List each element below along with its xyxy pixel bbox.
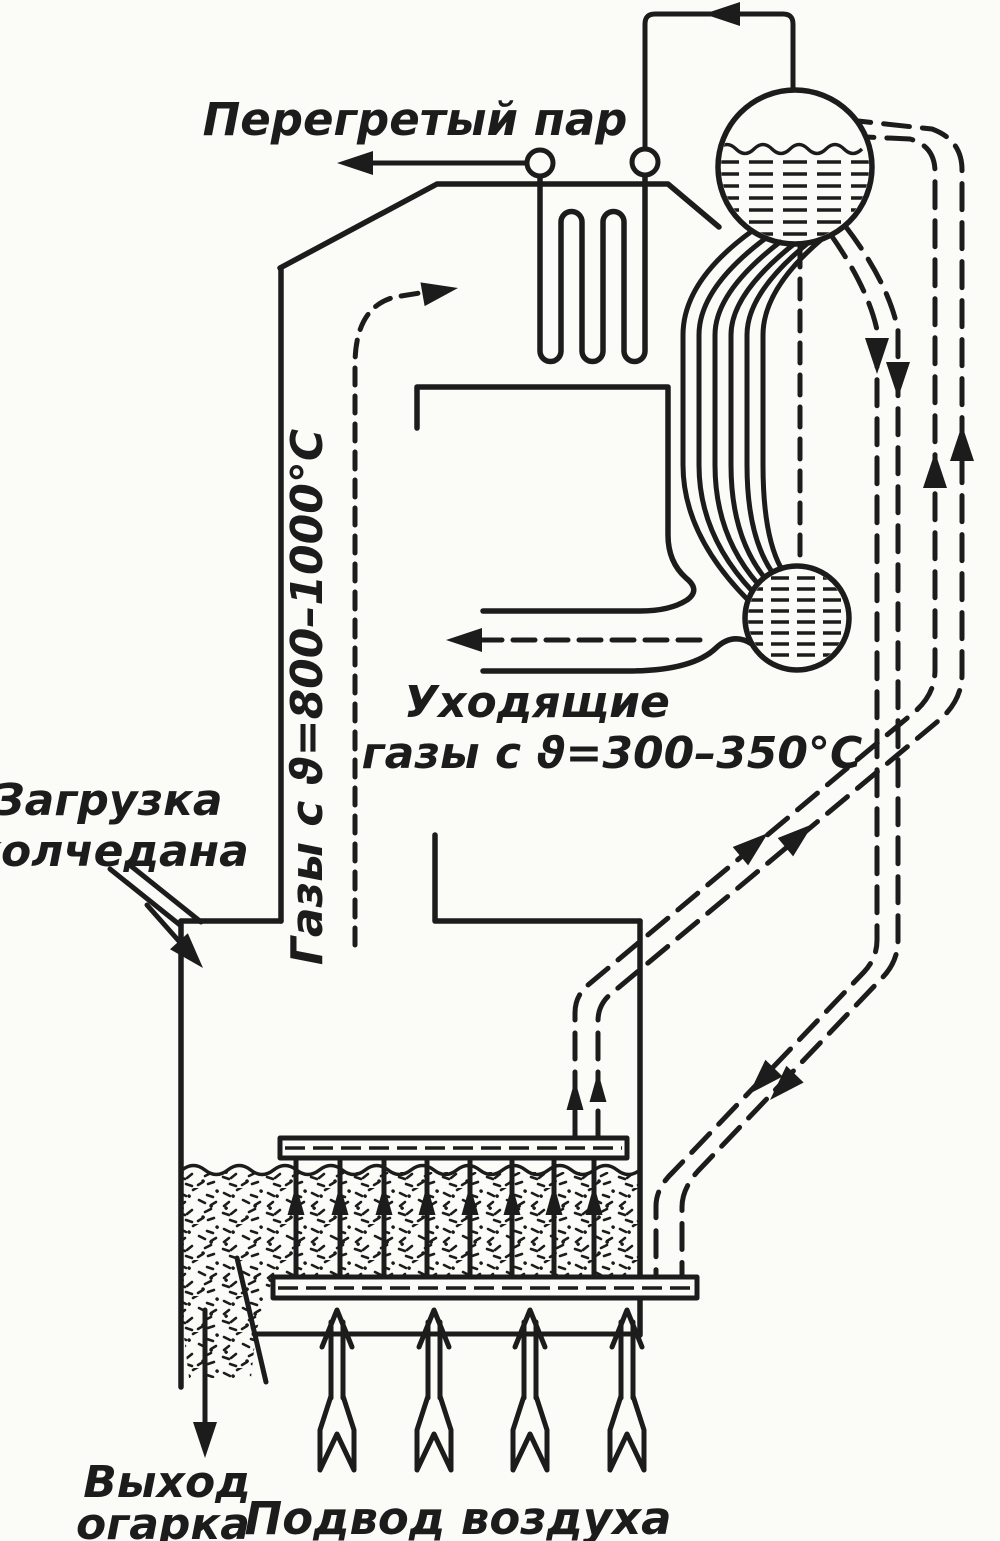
label-exhaust-gases-line1: Уходящие <box>404 677 670 728</box>
labels: Перегретый пар Газы с ϑ=800–1000°C Уходя… <box>0 93 862 1541</box>
superheater-coil <box>540 177 645 362</box>
exhaust-duct-lower-wall <box>483 639 752 671</box>
hot-gas-flow <box>355 276 460 945</box>
lower-drum <box>745 566 850 670</box>
scanned-diagram-page: Перегретый пар Газы с ϑ=800–1000°C Уходя… <box>0 0 1000 1541</box>
inner-partition-wall <box>417 387 694 611</box>
pipe-arrow-icon <box>704 2 740 26</box>
label-exhaust-gases-line2: газы с ϑ=300–350°C <box>362 728 863 779</box>
label-air-supply: Подвод воздуха <box>245 1492 672 1541</box>
label-superheated-steam: Перегретый пар <box>203 93 628 146</box>
label-hot-gases: Газы с ϑ=800–1000°C <box>282 429 333 965</box>
steam-valve-left <box>527 150 553 176</box>
exhaust-gas-flow <box>446 628 700 652</box>
steam-arrow-icon <box>337 151 373 175</box>
steam-valve-right <box>632 149 658 175</box>
label-pyrite-feed-line1: Загрузка <box>0 775 223 826</box>
label-pyrite-feed-line2: колчедана <box>0 826 249 877</box>
lower-header-bar <box>273 1277 697 1298</box>
boiler-diagram: Перегретый пар Газы с ϑ=800–1000°C Уходя… <box>0 0 1000 1541</box>
cinder-arrow-icon <box>193 1422 217 1458</box>
furnace-top-right <box>435 835 640 921</box>
duct-roof <box>280 184 719 268</box>
gas-arrow-icon <box>420 276 460 306</box>
steam-drum <box>715 90 875 244</box>
label-cinder-out-line2: огарка <box>76 1499 250 1541</box>
drum-tube-bundle <box>683 231 822 601</box>
pyrite-feed-chute <box>110 866 212 976</box>
upper-header-bar <box>280 1138 627 1158</box>
exhaust-arrow-icon <box>446 628 482 652</box>
